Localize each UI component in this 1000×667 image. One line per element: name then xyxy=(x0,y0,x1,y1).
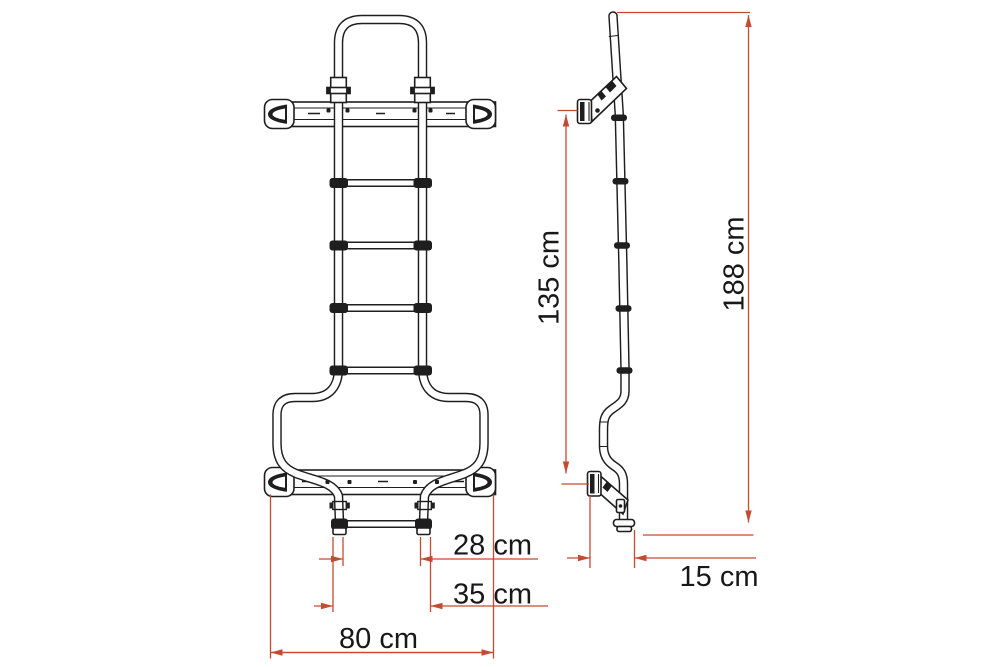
ladder-foot-side xyxy=(614,520,635,532)
ladder-feet-front xyxy=(333,528,430,535)
grab-handle xyxy=(339,20,423,98)
leg-clamps xyxy=(330,502,435,510)
dimension-label-35cm: 35 cm xyxy=(453,579,532,611)
dimension-label-80cm: 80 cm xyxy=(339,623,418,655)
ladder-front-view xyxy=(265,20,496,535)
dimension-135cm: 135 cm xyxy=(534,111,590,485)
dimension-label-188cm: 188 cm xyxy=(719,216,751,311)
ladder-side-view xyxy=(578,16,635,532)
dimension-label-15cm: 15 cm xyxy=(680,561,759,593)
dimension-label-28cm: 28 cm xyxy=(453,530,532,562)
dimension-label-135cm: 135 cm xyxy=(534,230,566,325)
top-mounting-bar xyxy=(265,100,496,129)
dimension-80cm: 80 cm xyxy=(271,623,494,655)
ladder-technical-drawing: 28 cm 35 cm 80 cm 135 cm 188 cm xyxy=(0,0,1000,667)
dimension-188cm: 188 cm xyxy=(617,13,754,536)
drawing-canvas: 28 cm 35 cm 80 cm 135 cm 188 cm xyxy=(0,0,1000,667)
handle-clamp-sleeves xyxy=(327,78,434,103)
dimension-15cm: 15 cm xyxy=(567,496,758,593)
